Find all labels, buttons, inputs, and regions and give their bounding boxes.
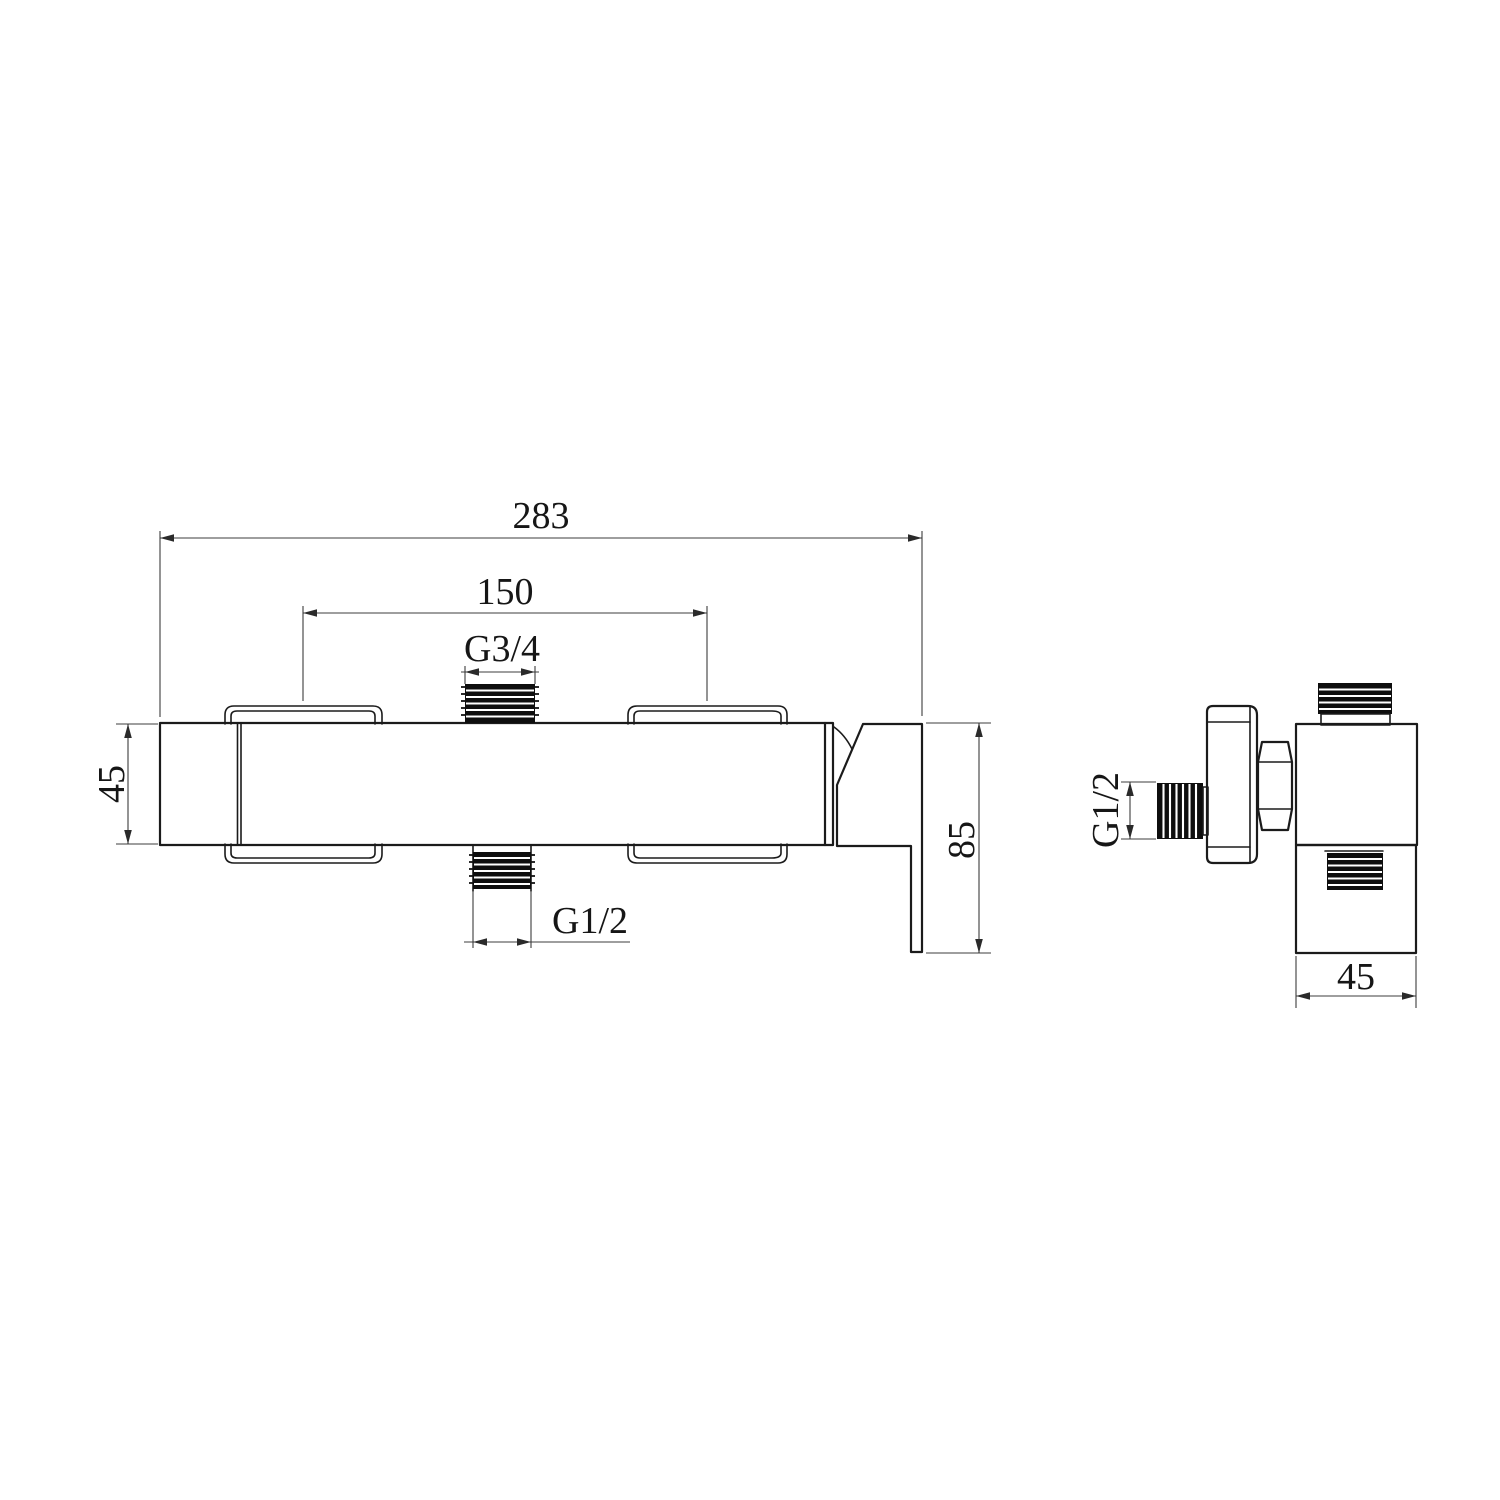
- dim-side-inlet-thread: G1/2: [1085, 772, 1156, 848]
- side-inlet-port-g12: [1157, 783, 1208, 839]
- dim-side-depth-label: 45: [1337, 956, 1375, 998]
- side-top-port-g34: [1318, 683, 1392, 725]
- technical-drawing: 283 150 G3/4 45: [0, 0, 1500, 1500]
- tab-top-right-outer: [628, 706, 787, 724]
- dim-top-thread: G3/4: [461, 628, 540, 676]
- drawing-canvas: 283 150 G3/4 45: [0, 0, 1500, 1500]
- front-bottom-port-g12: [469, 845, 535, 891]
- dim-bottom-thread: G1/2: [464, 891, 630, 948]
- front-top-port-g34: [461, 666, 539, 723]
- side-view: G1/2 45: [1085, 683, 1417, 1008]
- tab-bottom-right-outer: [628, 844, 787, 863]
- front-handle-lever: [834, 724, 922, 952]
- front-view: 283 150 G3/4 45: [91, 495, 991, 953]
- dim-bottom-thread-label: G1/2: [552, 900, 628, 942]
- dim-overall-height: 85: [926, 723, 991, 953]
- hex-nut-outline: [1258, 742, 1292, 830]
- handle-outline: [837, 724, 922, 952]
- dim-center-spacing-label: 150: [477, 571, 534, 613]
- dim-body-height-label: 45: [91, 765, 133, 803]
- side-g12-cap: [1203, 787, 1208, 835]
- tab-top-left-outer: [225, 706, 382, 724]
- dim-side-inlet-thread-label: G1/2: [1085, 772, 1127, 848]
- dim-side-depth: 45: [1296, 956, 1416, 1008]
- side-outlet-thread: [1325, 851, 1383, 890]
- side-body-block: [1296, 724, 1417, 845]
- tab-bottom-left-outer: [225, 844, 382, 863]
- dim-overall-height-label: 85: [941, 821, 983, 859]
- handle-pivot-arc: [834, 727, 852, 749]
- dim-overall-width-label: 283: [513, 495, 570, 537]
- front-union-tabs: [225, 706, 787, 863]
- front-body-outline: [160, 723, 833, 845]
- dim-body-height: 45: [91, 724, 158, 844]
- dim-top-thread-label: G3/4: [464, 628, 540, 670]
- dim-overall-width: 283: [160, 495, 922, 717]
- side-escutcheon: [1207, 706, 1257, 863]
- side-hex-nut: [1258, 742, 1292, 830]
